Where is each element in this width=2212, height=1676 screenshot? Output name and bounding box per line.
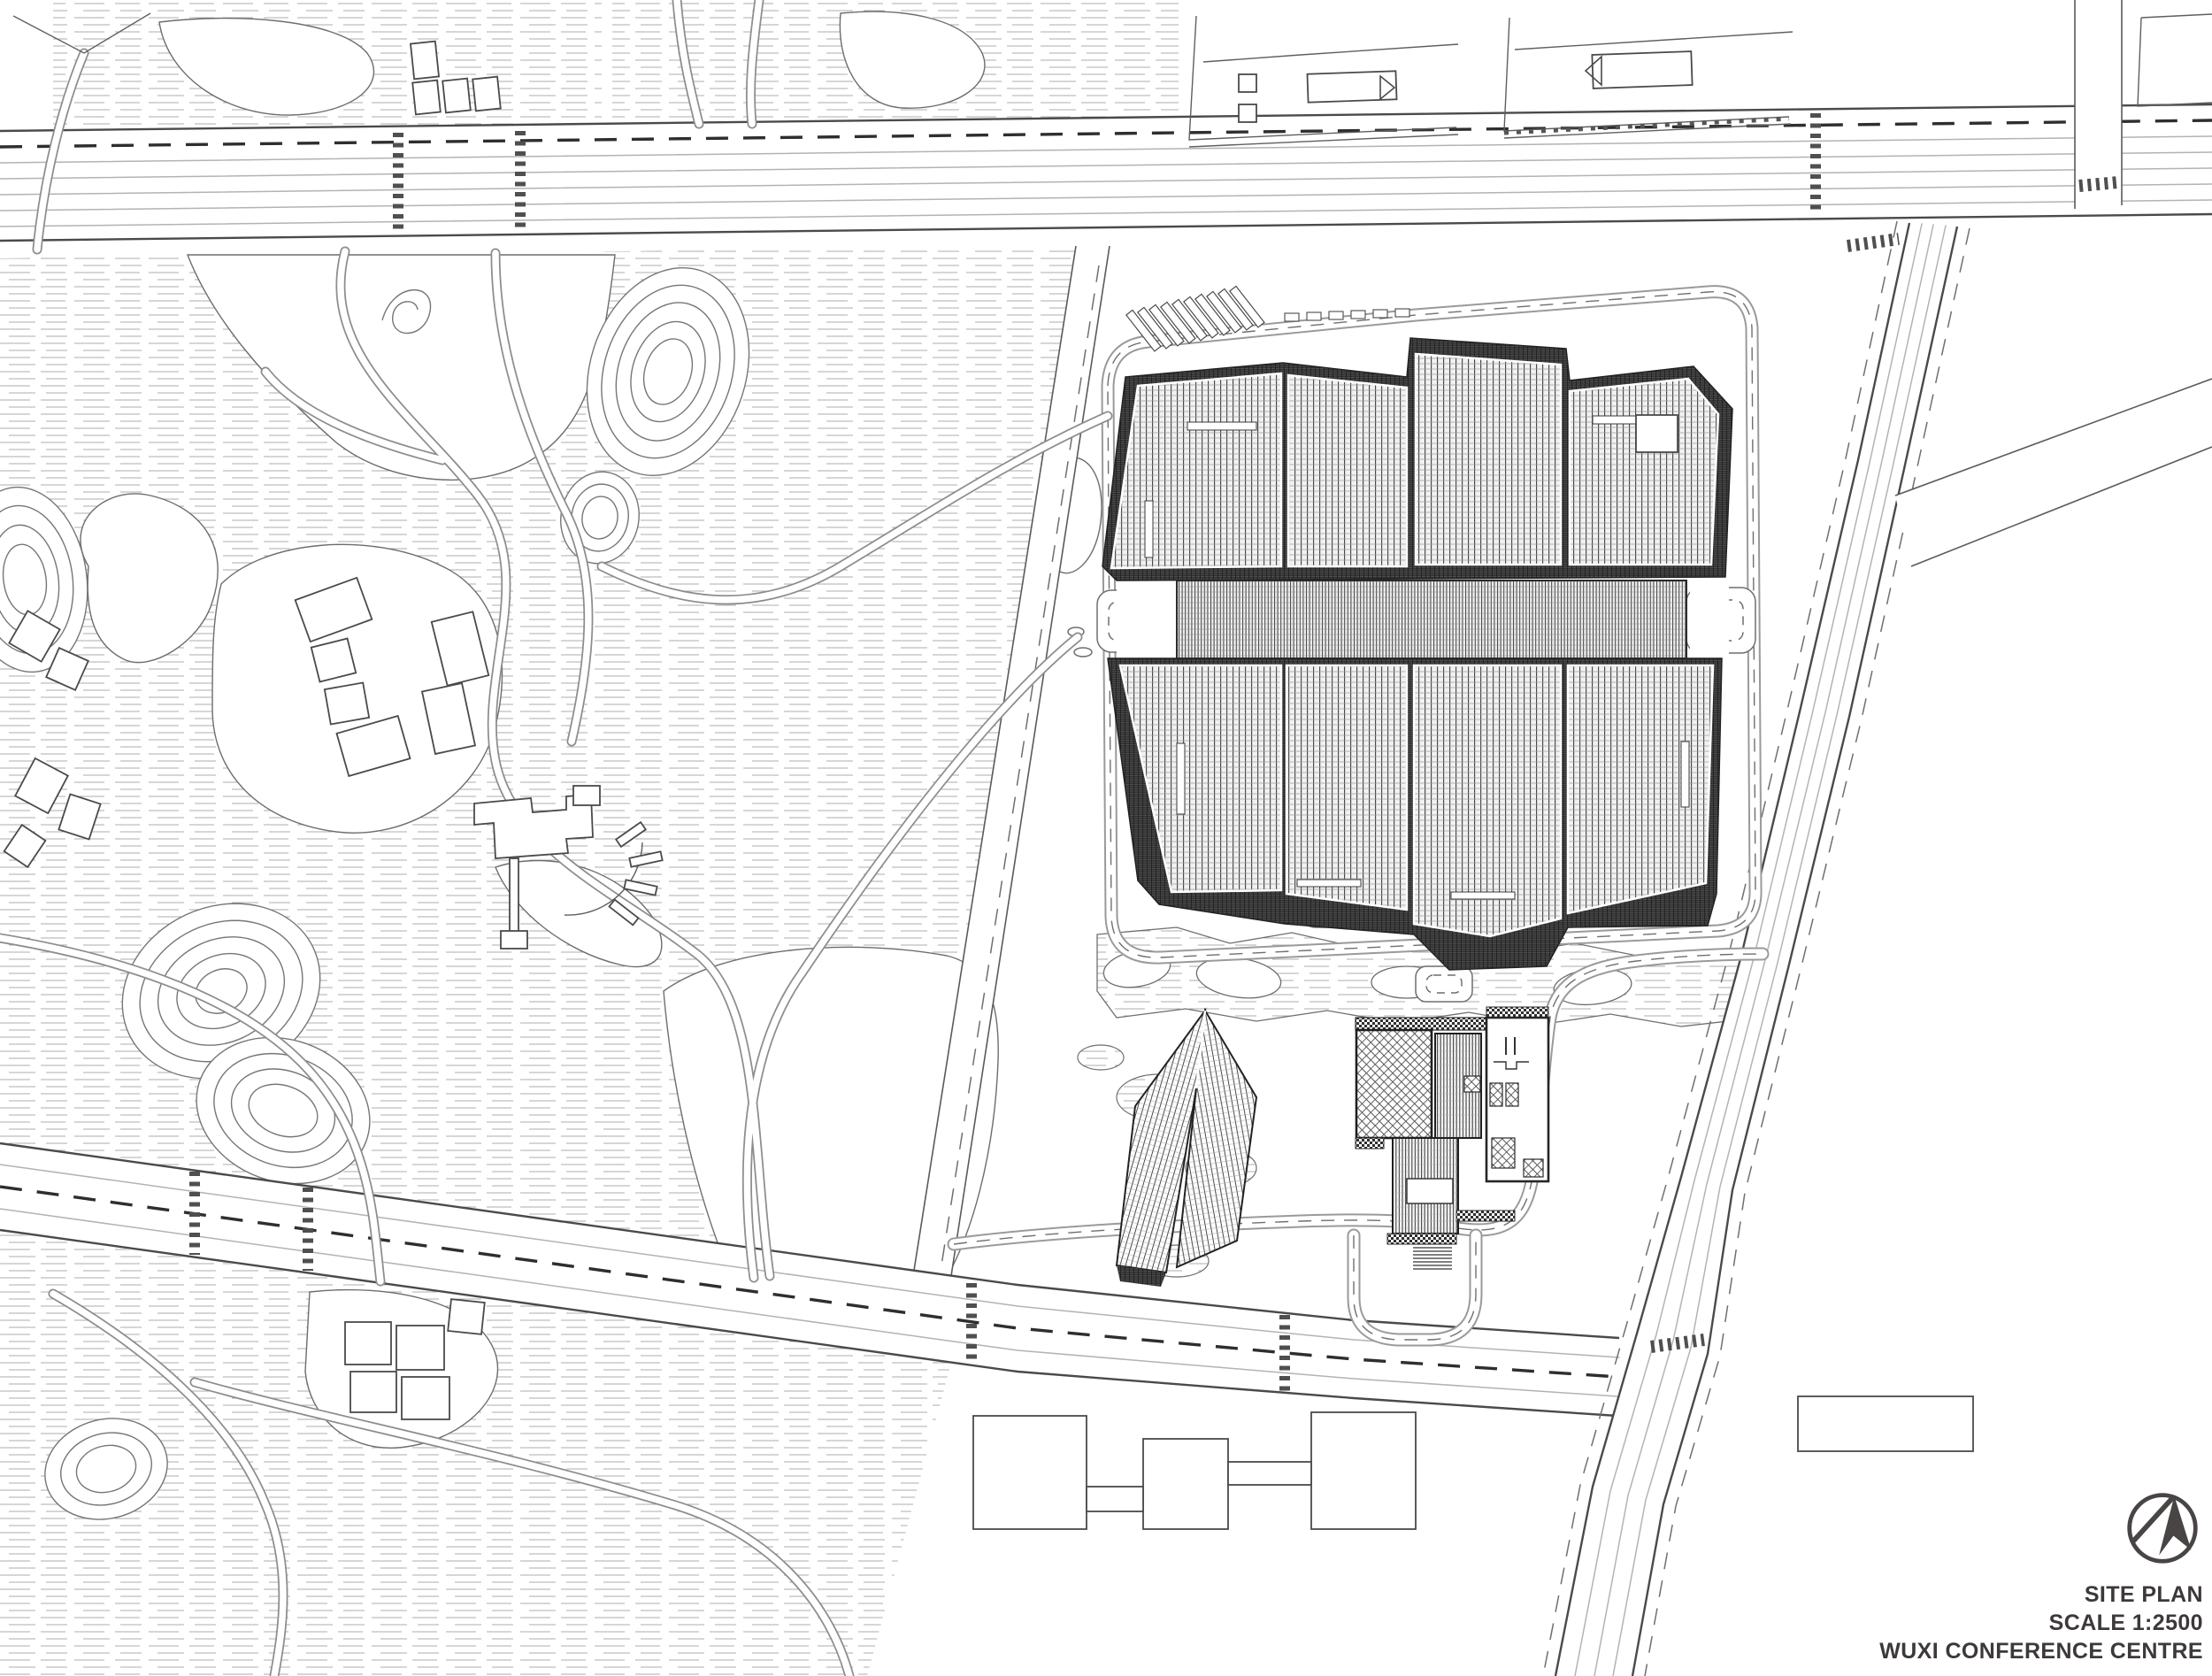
city-block-corner — [2138, 14, 2212, 106]
roof-central-spine — [1177, 580, 1686, 658]
hotel-complex — [1356, 1007, 1548, 1269]
east-branch-road — [1895, 379, 2212, 566]
drawing-title: SITE PLAN — [1879, 1580, 2203, 1609]
roof-opening — [1407, 1179, 1453, 1203]
checker-strip-south — [1387, 1234, 1456, 1244]
site-plan-drawing — [0, 0, 2212, 1676]
crosshatch-roof — [1356, 1030, 1432, 1138]
architect-monogram-north-arrow-icon — [2124, 1488, 2201, 1565]
project-name: WUXI CONFERENCE CENTRE — [1879, 1637, 2203, 1665]
spine-gap-east — [1690, 584, 1729, 655]
title-block: SITE PLAN SCALE 1:2500 WUXI CONFERENCE C… — [1879, 1488, 2203, 1665]
annex-folded-roof — [1117, 1011, 1256, 1287]
checker-strip-base — [1456, 1211, 1515, 1221]
crosswalk — [1847, 239, 1899, 246]
canopy-strip-east — [1486, 1007, 1548, 1018]
canopy-strip — [1356, 1018, 1486, 1030]
entry-stair — [1413, 1244, 1452, 1269]
checker-step — [1356, 1138, 1384, 1149]
site-plan-sheet: SITE PLAN SCALE 1:2500 WUXI CONFERENCE C… — [0, 0, 2212, 1676]
drawing-scale: SCALE 1:2500 — [1879, 1609, 2203, 1637]
conference-centre-hall — [1102, 286, 1732, 970]
roof-bays-north — [1111, 354, 1718, 568]
plaza-kiosk — [1636, 415, 1678, 452]
south-city-buildings — [973, 1396, 1973, 1529]
north-street — [2075, 0, 2122, 209]
spine-gap-west — [1117, 586, 1173, 655]
